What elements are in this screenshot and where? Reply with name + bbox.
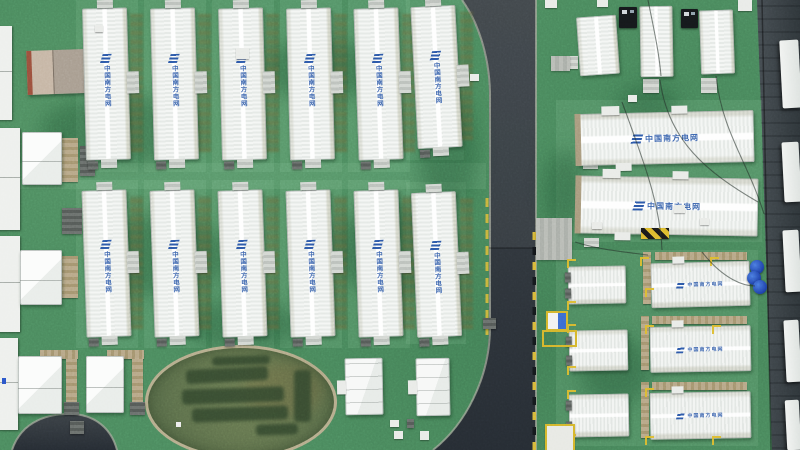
hvac-side-box bbox=[263, 71, 276, 93]
csg-logo-icon bbox=[100, 53, 112, 62]
panel-seam bbox=[0, 71, 12, 72]
csg-logo-icon bbox=[236, 240, 248, 249]
equipment-box bbox=[407, 419, 414, 428]
container-branding: 中国南方电网 bbox=[576, 110, 754, 166]
container-branding: 中国南方电网 bbox=[219, 53, 265, 107]
battery-storage-container: 中国南方电网 bbox=[286, 7, 335, 160]
container-end-steps bbox=[100, 159, 116, 168]
hvac-side-box bbox=[195, 71, 208, 93]
container-branding: 中国南方电网 bbox=[355, 239, 402, 294]
equipment-cube bbox=[22, 132, 62, 185]
battery-storage-container: 中国南方电网 bbox=[650, 325, 752, 373]
equipment-box bbox=[483, 318, 496, 329]
container-end-steps bbox=[232, 0, 248, 8]
roof-vent bbox=[672, 171, 688, 179]
hvac-side-box bbox=[456, 64, 469, 87]
container-label: 中国南方电网 bbox=[687, 280, 723, 288]
roof-vent bbox=[601, 106, 619, 115]
yellow-corner-mark bbox=[712, 325, 721, 334]
container-corner-box bbox=[361, 338, 371, 346]
battery-storage-container: 中国南方电网 bbox=[650, 261, 750, 309]
ground-pad bbox=[674, 205, 685, 213]
hedge-row bbox=[192, 405, 288, 422]
hvac-side-box bbox=[331, 251, 344, 273]
container-end-steps bbox=[232, 182, 248, 191]
blue-marker bbox=[2, 378, 6, 384]
battery-storage-container: 中国南方电网 bbox=[353, 189, 403, 337]
container-branding: 中国南方电网 bbox=[650, 261, 750, 309]
container-branding: 中国南方电网 bbox=[287, 53, 333, 107]
container-label: 中国南方电网 bbox=[687, 412, 723, 420]
panel-seam bbox=[86, 387, 124, 388]
container-end-steps bbox=[164, 182, 180, 191]
wall-white-panel bbox=[781, 142, 800, 203]
equipment-cube-container bbox=[569, 393, 630, 437]
container-label: 中国南方电网 bbox=[171, 251, 179, 293]
yellow-outlined-pad bbox=[545, 424, 575, 450]
container-end-steps bbox=[237, 336, 253, 346]
battery-storage-container: 中国南方电网 bbox=[576, 110, 754, 166]
container-corner-box bbox=[157, 338, 167, 346]
concrete-pad bbox=[536, 218, 572, 260]
container-label: 中国南方电网 bbox=[375, 64, 383, 106]
hvac-side-box bbox=[127, 251, 140, 273]
ground-pad bbox=[592, 222, 602, 229]
container-end-steps bbox=[300, 182, 316, 191]
equipment-marker-box bbox=[546, 311, 568, 331]
battery-storage-container: 中国南方电网 bbox=[650, 391, 752, 440]
yellow-corner-mark bbox=[645, 388, 654, 397]
container-branding: 中国南方电网 bbox=[355, 53, 402, 108]
panel-seam bbox=[0, 282, 20, 283]
hazard-striped-bar bbox=[641, 228, 669, 239]
container-branding: 中国南方电网 bbox=[83, 53, 129, 107]
csg-logo-icon bbox=[676, 281, 685, 288]
wall-white-panel bbox=[779, 40, 800, 109]
equipment-cube-container bbox=[569, 329, 629, 371]
csg-logo-icon bbox=[100, 240, 112, 249]
equipment-cube bbox=[20, 250, 62, 305]
cable-tray bbox=[66, 359, 77, 404]
hedge-row bbox=[256, 423, 298, 435]
service-building bbox=[345, 358, 384, 416]
end-cap-tan bbox=[574, 114, 581, 166]
battery-storage-container: 中国南方电网 bbox=[411, 191, 462, 338]
container-label: 中国南方电网 bbox=[307, 65, 315, 107]
roof-seam bbox=[52, 50, 55, 94]
hvac-side-box bbox=[263, 251, 276, 273]
container-end-steps bbox=[96, 0, 112, 8]
fitting bbox=[566, 400, 572, 410]
csg-logo-icon bbox=[676, 346, 685, 353]
container-end-steps bbox=[373, 159, 389, 169]
container-corner-box bbox=[88, 161, 98, 169]
wall-white-panel bbox=[785, 400, 800, 450]
container-corner-box bbox=[89, 338, 99, 346]
container-branding: 中国南方电网 bbox=[287, 239, 334, 294]
battery-storage-container: 中国南方电网 bbox=[149, 189, 199, 337]
equipment-cube bbox=[86, 356, 124, 413]
equipment-box bbox=[62, 208, 82, 234]
container-corner-box bbox=[361, 161, 371, 169]
container-corner-box bbox=[224, 161, 234, 169]
roof-vent bbox=[672, 386, 684, 393]
yellow-corner-mark bbox=[567, 390, 576, 399]
ground-pad bbox=[236, 48, 249, 59]
fitting bbox=[565, 272, 571, 282]
container-label: 中国南方电网 bbox=[103, 65, 111, 107]
csg-logo-icon bbox=[304, 240, 316, 249]
battery-storage-container: 中国南方电网 bbox=[81, 189, 131, 337]
yellow-corner-mark bbox=[645, 288, 654, 297]
ground-pad bbox=[420, 431, 429, 440]
ground-pad bbox=[390, 420, 399, 427]
converter-container bbox=[576, 15, 620, 77]
container-end-steps bbox=[236, 159, 252, 168]
container-end-steps bbox=[300, 0, 316, 8]
container-label: 中国南方电网 bbox=[171, 65, 179, 107]
transformer-box bbox=[619, 7, 637, 28]
container-end-steps bbox=[304, 159, 320, 168]
converter-container bbox=[639, 6, 673, 78]
csg-logo-icon bbox=[630, 133, 643, 143]
ground-pad bbox=[95, 25, 103, 32]
fitting bbox=[566, 355, 572, 365]
hvac-side-box bbox=[456, 251, 469, 274]
container-end-steps bbox=[164, 0, 180, 8]
panel-seam bbox=[20, 280, 62, 281]
container-end-steps bbox=[169, 336, 185, 346]
blue-barrel bbox=[753, 280, 767, 294]
yellow-corner-mark bbox=[645, 325, 654, 334]
edge-container-partial bbox=[0, 128, 20, 230]
csg-logo-icon bbox=[168, 240, 180, 249]
container-end-steps bbox=[373, 336, 389, 346]
yellow-corner-mark bbox=[640, 257, 649, 266]
container-branding: 中国南方电网 bbox=[219, 239, 266, 294]
equipment-cube-container bbox=[568, 265, 627, 304]
battery-storage-container: 中国南方电网 bbox=[410, 5, 462, 149]
container-end-steps bbox=[101, 336, 117, 346]
yellow-corner-mark bbox=[710, 257, 719, 266]
csg-logo-icon bbox=[168, 53, 180, 62]
site-structures-layer: 中国南方电网中国南方电网中国南方电网中国南方电网中国南方电网中国南方电网中国南方… bbox=[0, 0, 800, 450]
container-label: 中国南方电网 bbox=[239, 65, 247, 107]
ground-pad bbox=[738, 0, 752, 11]
wall-white-panel bbox=[783, 320, 800, 383]
battery-storage-container: 中国南方电网 bbox=[150, 7, 199, 160]
hedge-row bbox=[294, 370, 311, 422]
service-building-tan bbox=[26, 49, 86, 95]
battery-storage-container: 中国南方电网 bbox=[218, 7, 267, 160]
csg-logo-icon bbox=[430, 241, 442, 251]
panel-seam bbox=[18, 388, 62, 389]
panel-seam bbox=[22, 161, 62, 162]
converter-container bbox=[699, 9, 735, 74]
transformer-box bbox=[681, 9, 698, 28]
wall-white-panel bbox=[782, 230, 800, 293]
equipment-cube bbox=[18, 356, 62, 414]
yellow-corner-mark bbox=[567, 301, 576, 310]
edge-container-partial bbox=[0, 236, 20, 332]
container-branding: 中国南方电网 bbox=[151, 239, 198, 294]
container-corner-box bbox=[156, 161, 166, 169]
csg-logo-icon bbox=[676, 412, 685, 419]
container-label: 中国南方电网 bbox=[687, 345, 723, 353]
hvac-side-box bbox=[399, 71, 412, 93]
container-label: 中国南方电网 bbox=[645, 132, 699, 144]
side-tab bbox=[337, 380, 346, 394]
roof-vent bbox=[602, 169, 620, 178]
access-steps bbox=[701, 78, 717, 93]
side-tab bbox=[408, 380, 417, 394]
battery-storage-container: 中国南方电网 bbox=[353, 7, 403, 160]
container-end-steps bbox=[432, 146, 448, 156]
csg-logo-icon bbox=[304, 53, 316, 62]
ground-pad bbox=[597, 0, 608, 7]
equipment-box bbox=[130, 402, 145, 415]
container-branding: 中国南方电网 bbox=[650, 325, 752, 373]
container-end-steps bbox=[425, 184, 441, 193]
service-building bbox=[415, 358, 450, 417]
battery-storage-container: 中国南方电网 bbox=[217, 189, 267, 337]
container-end-steps bbox=[305, 336, 321, 346]
container-label: 中国南方电网 bbox=[433, 252, 441, 294]
csg-logo-icon bbox=[632, 200, 645, 210]
roof-vent bbox=[614, 232, 630, 240]
edge-container-partial bbox=[0, 338, 18, 430]
container-end-steps bbox=[368, 182, 384, 191]
container-branding: 中国南方电网 bbox=[650, 391, 752, 440]
edge-container-partial bbox=[0, 26, 12, 120]
container-branding: 中国南方电网 bbox=[413, 240, 460, 295]
csg-logo-icon bbox=[372, 240, 384, 249]
container-branding: 中国南方电网 bbox=[83, 239, 130, 294]
container-label: 中国南方电网 bbox=[375, 251, 383, 293]
panel-seam bbox=[0, 177, 20, 178]
container-end-steps bbox=[168, 159, 184, 168]
yellow-corner-mark bbox=[567, 259, 576, 268]
access-steps bbox=[584, 238, 599, 247]
battery-storage-container: 中国南方电网 bbox=[285, 189, 335, 337]
cable-tray bbox=[132, 359, 143, 404]
container-end-steps bbox=[432, 336, 448, 346]
cable-tray bbox=[62, 138, 78, 182]
ground-pad bbox=[700, 218, 709, 225]
hvac-side-box bbox=[127, 71, 140, 93]
hedge-logo-garden bbox=[145, 345, 337, 450]
yellow-outline-area bbox=[542, 330, 577, 347]
ground-pad bbox=[545, 0, 557, 8]
container-corner-box bbox=[419, 338, 429, 346]
container-branding: 中国南方电网 bbox=[413, 50, 461, 105]
hedge-row bbox=[212, 355, 270, 366]
garden-marker bbox=[176, 422, 181, 427]
roof-vent bbox=[671, 105, 687, 113]
roof-vent bbox=[672, 320, 684, 327]
ground-pad bbox=[470, 74, 479, 81]
ground-pad bbox=[628, 95, 637, 102]
access-steps bbox=[643, 79, 659, 93]
container-label: 中国南方电网 bbox=[103, 251, 111, 293]
yellow-corner-mark bbox=[567, 366, 576, 375]
red-roof-edge bbox=[26, 51, 33, 95]
cable-tray bbox=[652, 316, 747, 324]
container-end-steps bbox=[96, 182, 112, 191]
container-end-steps bbox=[368, 0, 384, 8]
battery-storage-container: 中国南方电网 bbox=[82, 7, 131, 160]
concrete-pad bbox=[551, 56, 570, 71]
yellow-corner-mark bbox=[645, 436, 654, 445]
container-corner-box bbox=[293, 338, 303, 346]
hvac-side-box bbox=[399, 251, 412, 273]
roof-vent bbox=[672, 256, 684, 263]
aerial-photo-battery-storage-site: 中国南方电网中国南方电网中国南方电网中国南方电网中国南方电网中国南方电网中国南方… bbox=[0, 0, 800, 450]
hvac-side-box bbox=[195, 251, 208, 273]
equipment-box bbox=[70, 421, 84, 434]
fitting bbox=[565, 288, 571, 298]
container-corner-box bbox=[292, 161, 302, 169]
ground-pad bbox=[394, 431, 403, 439]
csg-logo-icon bbox=[430, 51, 441, 61]
end-cap-tan bbox=[575, 175, 582, 233]
container-branding: 中国南方电网 bbox=[151, 53, 197, 107]
cable-tray bbox=[655, 252, 747, 260]
container-label: 中国南方电网 bbox=[307, 251, 315, 293]
csg-logo-icon bbox=[372, 53, 384, 62]
container-corner-box bbox=[420, 149, 430, 158]
container-label: 中国南方电网 bbox=[239, 251, 247, 293]
container-corner-box bbox=[225, 338, 235, 346]
equipment-box bbox=[64, 402, 79, 415]
cable-tray bbox=[652, 382, 747, 390]
cable-tray bbox=[62, 256, 78, 298]
hvac-side-box bbox=[331, 71, 344, 93]
yellow-corner-mark bbox=[712, 436, 721, 445]
container-end-steps bbox=[424, 0, 440, 7]
container-label: 中国南方电网 bbox=[432, 62, 441, 104]
